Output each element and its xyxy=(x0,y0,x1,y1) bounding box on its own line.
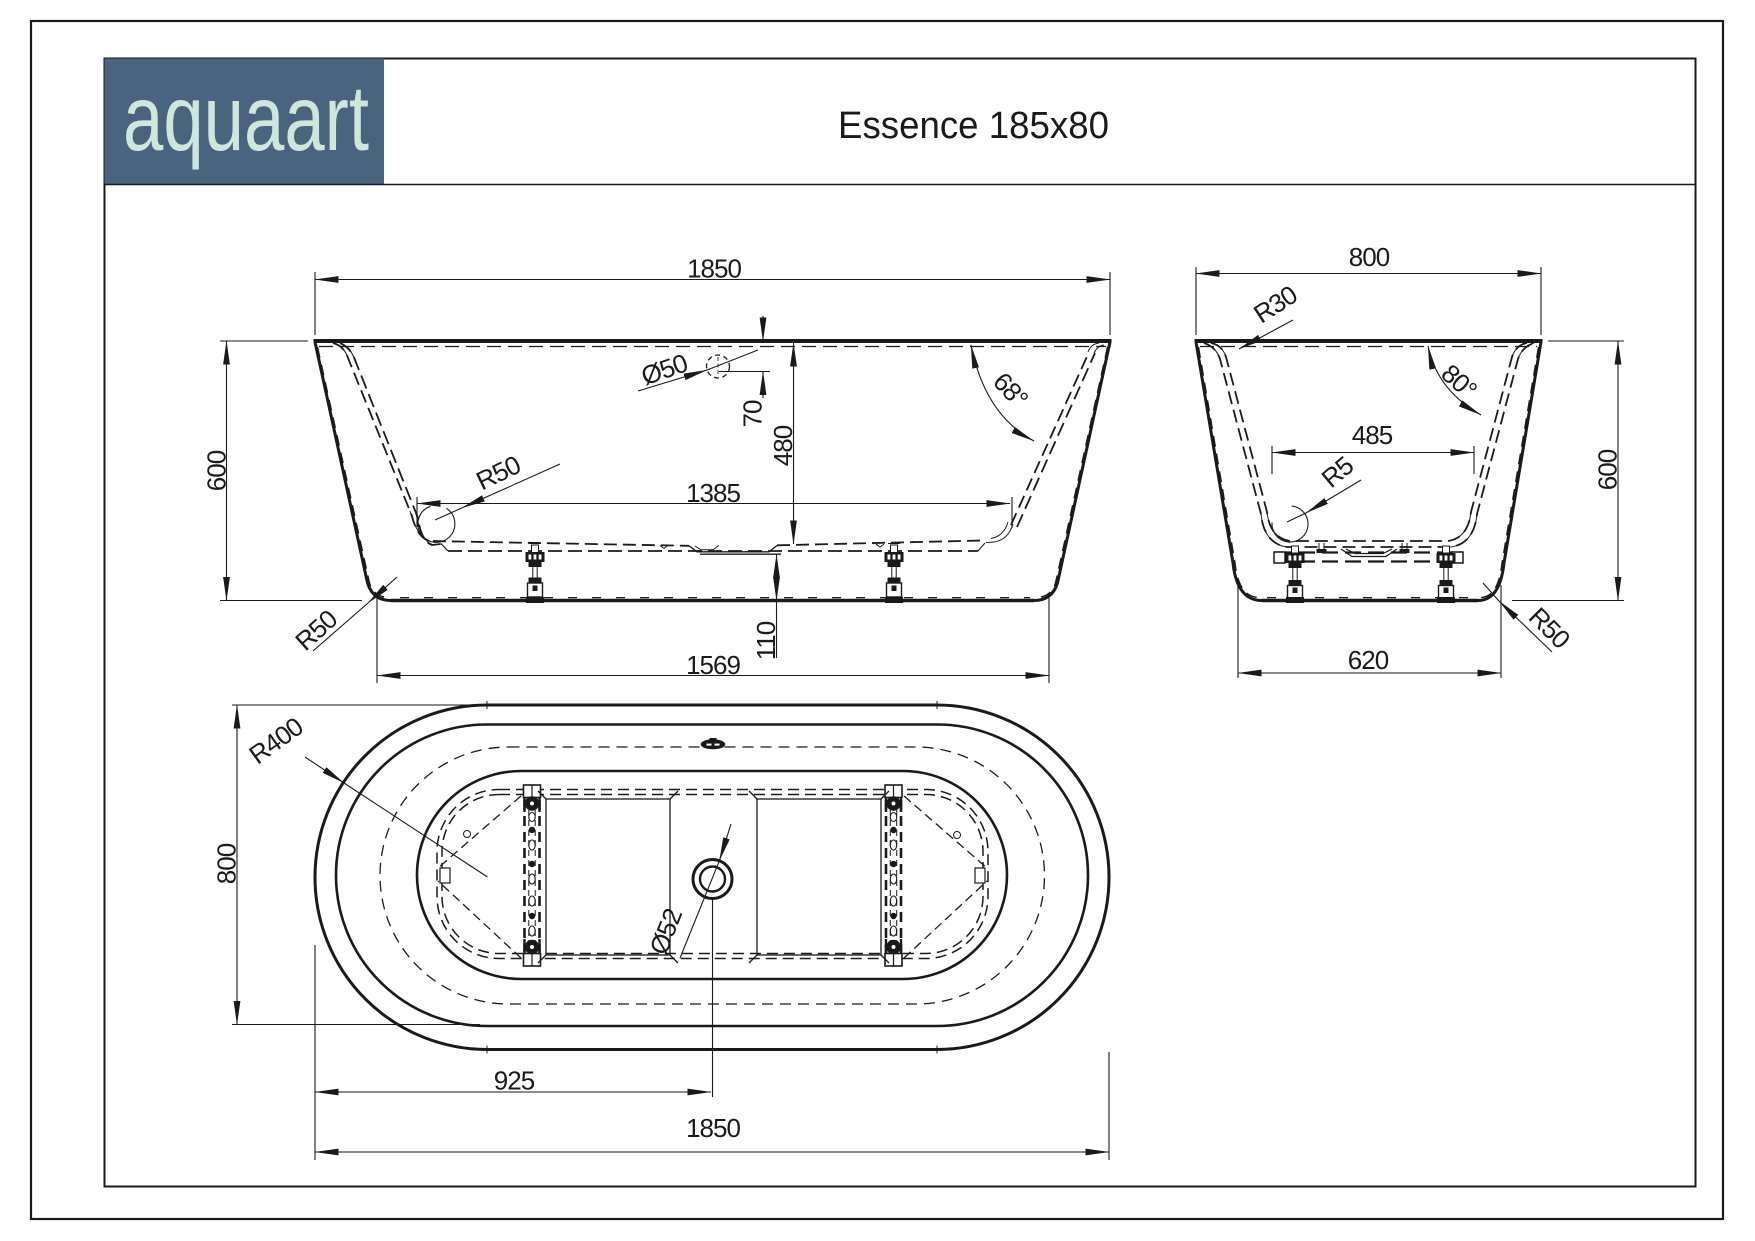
svg-text:480: 480 xyxy=(768,425,798,466)
svg-text:1569: 1569 xyxy=(686,650,740,680)
svg-text:620: 620 xyxy=(1348,645,1389,675)
svg-text:925: 925 xyxy=(494,1066,535,1096)
svg-text:70: 70 xyxy=(738,400,768,427)
svg-text:1850: 1850 xyxy=(687,254,741,284)
svg-text:1385: 1385 xyxy=(686,478,740,508)
svg-text:110: 110 xyxy=(751,621,781,660)
svg-text:600: 600 xyxy=(1593,449,1623,490)
svg-text:Essence 185x80: Essence 185x80 xyxy=(838,105,1109,147)
svg-text:485: 485 xyxy=(1352,420,1393,450)
svg-text:600: 600 xyxy=(202,450,232,491)
svg-text:800: 800 xyxy=(212,843,242,884)
svg-text:aquaart: aquaart xyxy=(123,66,369,170)
svg-text:1850: 1850 xyxy=(686,1113,740,1143)
svg-text:800: 800 xyxy=(1349,242,1390,272)
